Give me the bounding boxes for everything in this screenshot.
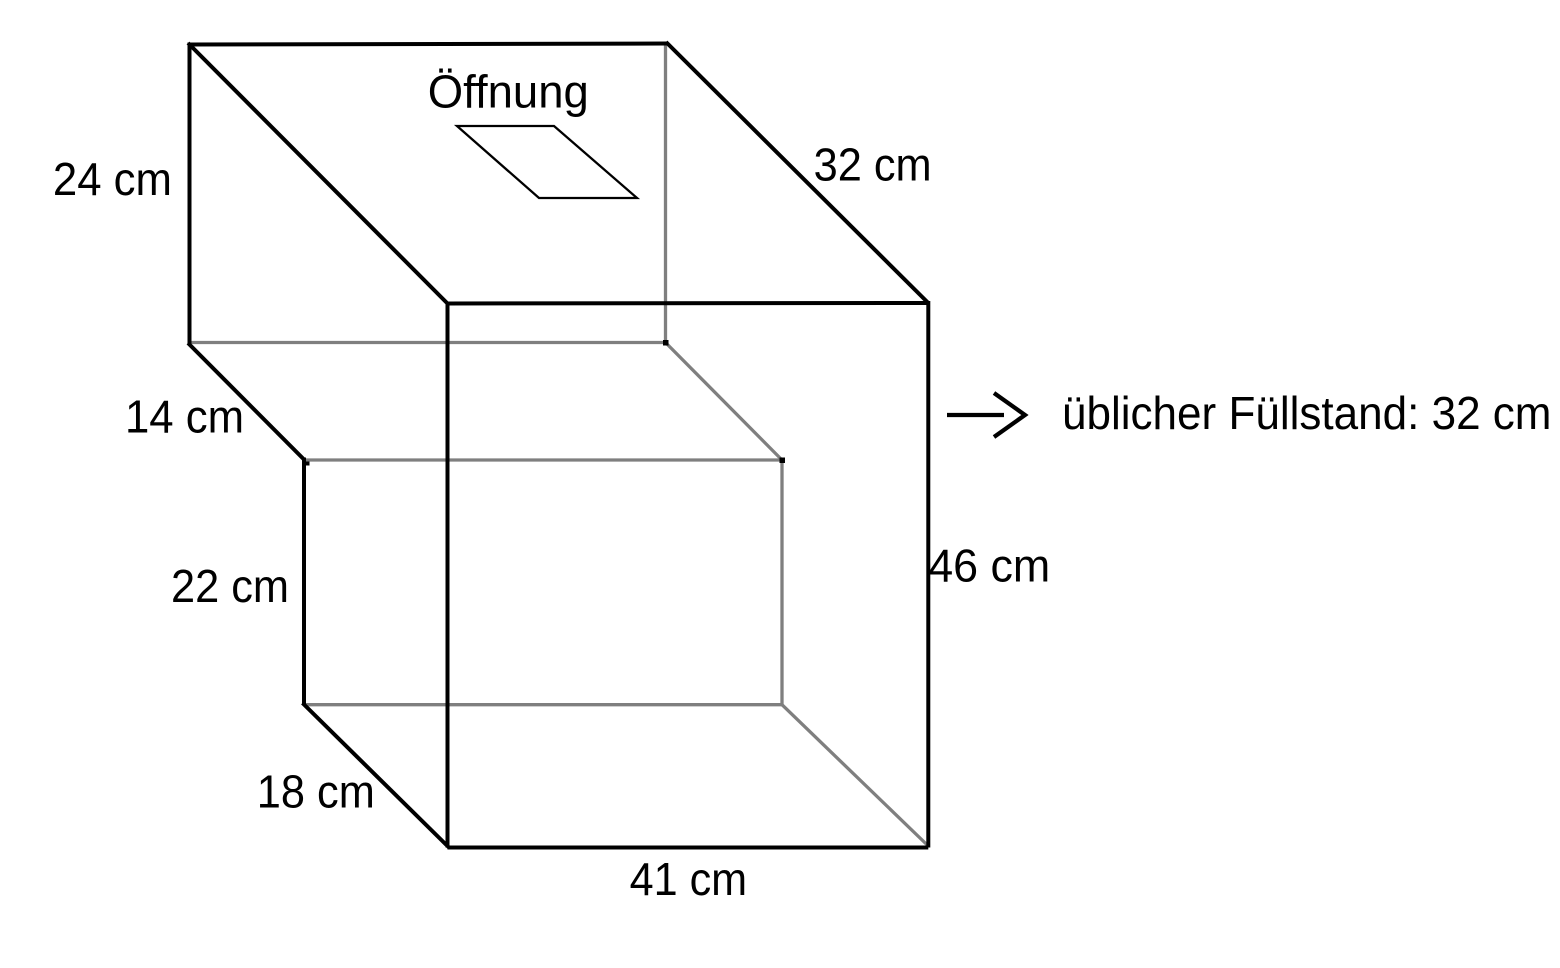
svg-text:24 cm: 24 cm (53, 153, 172, 205)
svg-text:Öffnung: Öffnung (428, 66, 589, 118)
svg-text:46 cm: 46 cm (928, 540, 1050, 592)
svg-text:22 cm: 22 cm (171, 560, 289, 612)
svg-text:14 cm: 14 cm (125, 391, 244, 443)
svg-text:18 cm: 18 cm (257, 766, 375, 818)
svg-text:üblicher Füllstand: 32 cm: üblicher Füllstand: 32 cm (1062, 387, 1552, 439)
svg-text:32 cm: 32 cm (814, 139, 932, 191)
svg-text:41 cm: 41 cm (630, 853, 748, 905)
